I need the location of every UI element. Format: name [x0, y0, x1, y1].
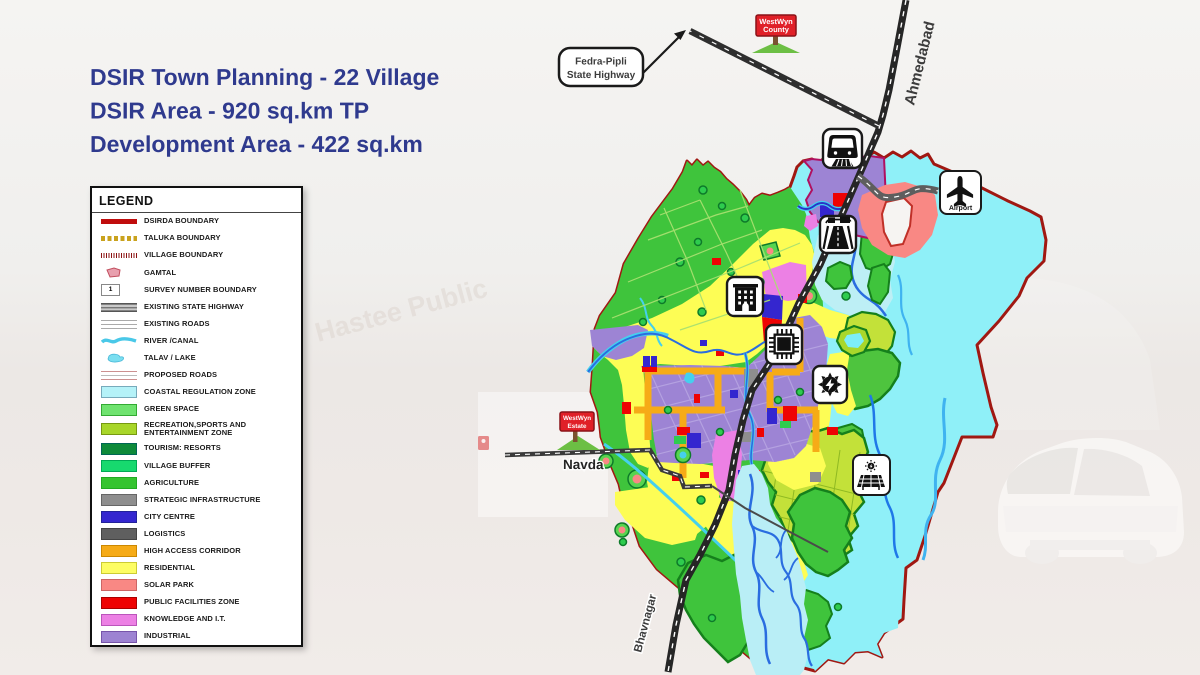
svg-text:County: County — [763, 25, 790, 34]
svg-text:Development Area - 422 sq.km: Development Area - 422 sq.km — [90, 131, 423, 157]
svg-text:WestWyn: WestWyn — [563, 415, 591, 422]
svg-text:Bhavnagar: Bhavnagar — [632, 593, 659, 654]
svg-text:Ahmedabad: Ahmedabad — [901, 20, 938, 107]
svg-text:Fedra-Pipli: Fedra-Pipli — [575, 56, 627, 67]
svg-text:Estate: Estate — [568, 423, 587, 430]
svg-text:Navda: Navda — [563, 457, 604, 472]
svg-text:DSIR Area - 920 sq.km TP: DSIR Area - 920 sq.km TP — [90, 98, 369, 124]
svg-text:State Highway: State Highway — [567, 70, 636, 81]
svg-text:Airport: Airport — [949, 204, 973, 212]
svg-text:Hastee Public: Hastee Public — [312, 273, 491, 348]
svg-text:DSIR Town Planning - 22 Villag: DSIR Town Planning - 22 Village — [90, 64, 439, 90]
